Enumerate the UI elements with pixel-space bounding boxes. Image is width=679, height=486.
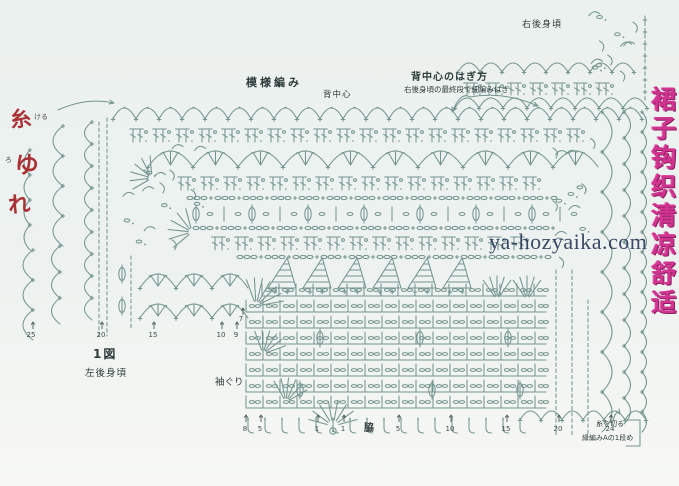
stitch-count-number: 1 bbox=[315, 425, 319, 433]
stitch-count-number: 10 bbox=[446, 425, 455, 433]
watermark-text: ya-hozyaika.com bbox=[489, 229, 647, 255]
stitch-count-number: 8 bbox=[243, 425, 247, 433]
label-pattern-stitch: 模様編み bbox=[246, 74, 302, 90]
label-edging-row1: 縁編みAの1段め bbox=[582, 433, 633, 443]
red-handwritten-char-3: れ bbox=[7, 186, 32, 220]
label-armhole: 袖ぐり bbox=[215, 374, 244, 388]
label-figure-1: 1図 bbox=[93, 345, 117, 362]
red-handwritten-char-1: 糸 bbox=[8, 102, 33, 135]
label-back-center-join: 背中心のはぎ方 bbox=[411, 68, 488, 83]
stitch-count-number: 25 bbox=[27, 331, 36, 339]
stitch-count-number: 20 bbox=[554, 425, 563, 433]
red-handwritten-char-2: ゆ bbox=[13, 144, 41, 181]
stitch-count-number: 20 bbox=[97, 331, 106, 339]
crochet-pattern-page: 模様編み 背中心 背中心のはぎ方 右後身頃の最終段で細編みはぎ 右後身頃 1図 … bbox=[0, 0, 679, 486]
label-left-back-panel: 左後身頃 bbox=[85, 365, 127, 379]
stitch-count-number: 1 bbox=[341, 425, 345, 433]
vertical-banner: 裙子钩织清凉舒适 bbox=[649, 86, 679, 316]
banner-character: 织 bbox=[651, 173, 676, 200]
red-char-1-note: ける bbox=[34, 112, 48, 122]
banner-character: 裙 bbox=[651, 86, 676, 113]
banner-character: 子 bbox=[651, 115, 676, 142]
red-char-2-note: ろ bbox=[5, 155, 12, 165]
banner-character: 适 bbox=[651, 289, 676, 316]
label-side-seam: 脇 bbox=[364, 419, 374, 434]
banner-character: 清 bbox=[651, 202, 676, 229]
banner-character: 舒 bbox=[651, 260, 676, 287]
label-back-center: 背中心 bbox=[323, 88, 352, 100]
label-join-instruction: 右後身頃の最終段で細編みはぎ bbox=[404, 84, 509, 95]
stitch-count-number: 15 bbox=[149, 331, 158, 339]
stitch-count-number: 15 bbox=[502, 425, 511, 433]
stitch-count-number: 7 bbox=[239, 315, 243, 323]
banner-character: 凉 bbox=[651, 231, 676, 258]
stitch-count-number: 9 bbox=[234, 331, 238, 339]
stitch-count-number: 10 bbox=[217, 331, 226, 339]
stitch-count-number: 5 bbox=[258, 425, 262, 433]
label-right-back-panel: 右後身頃 bbox=[522, 17, 562, 30]
stitch-count-number: 5 bbox=[396, 425, 400, 433]
banner-character: 钩 bbox=[651, 144, 676, 171]
stitch-count-number: 24 bbox=[606, 425, 615, 433]
